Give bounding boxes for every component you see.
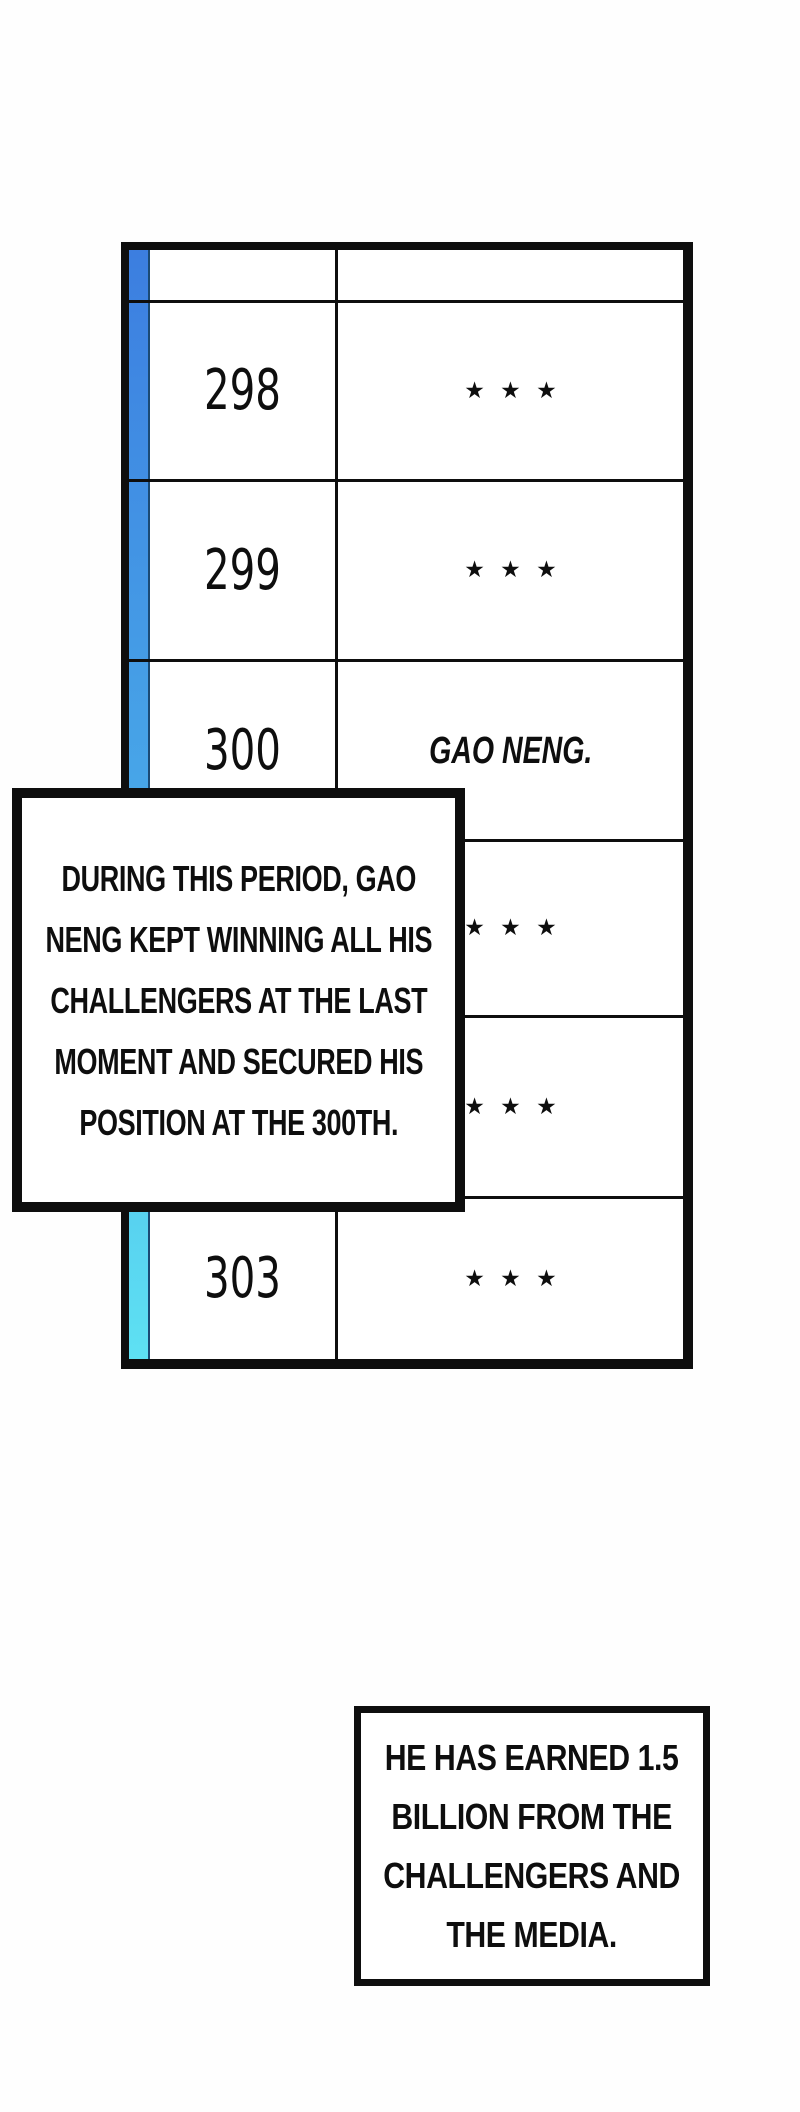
rank-value: 300: [204, 723, 281, 779]
narration-line: HE HAS EARNED 1.5: [384, 1728, 681, 1787]
name-cell: ★ ★ ★: [338, 1199, 683, 1359]
narration-line: CHALLENGERS AND: [384, 1846, 681, 1905]
table-header-row: [129, 250, 683, 303]
table-row: 303 ★ ★ ★: [129, 1199, 683, 1359]
narration-line: POSITION AT THE 300TH.: [45, 1092, 432, 1153]
table-row: 298 ★ ★ ★: [129, 303, 683, 482]
rank-cell: 298: [150, 303, 338, 479]
hidden-name-stars: ★ ★ ★: [460, 917, 560, 940]
rank-value: 299: [204, 543, 281, 599]
rank-value: 303: [204, 1251, 281, 1307]
name-value: GAO NENG.: [429, 732, 592, 770]
hidden-name-stars: ★ ★ ★: [460, 380, 560, 403]
hidden-name-stars: ★ ★ ★: [460, 1096, 560, 1119]
rank-value: 298: [204, 363, 281, 419]
narration-line: BILLION FROM THE: [384, 1787, 681, 1846]
header-rank-cell: [150, 250, 338, 300]
strip-spacer: [129, 1199, 150, 1359]
name-cell: ★ ★ ★: [338, 303, 683, 479]
narration-box-earnings: HE HAS EARNED 1.5 BILLION FROM THE CHALL…: [354, 1706, 710, 1986]
narration-box-period: DURING THIS PERIOD, GAO NENG KEPT WINNIN…: [12, 788, 465, 1212]
narration-line: CHALLENGERS AT THE LAST: [45, 970, 432, 1031]
narration-text: DURING THIS PERIOD, GAO NENG KEPT WINNIN…: [45, 848, 432, 1153]
strip-spacer: [129, 250, 150, 300]
hidden-name-stars: ★ ★ ★: [460, 559, 560, 582]
name-cell: ★ ★ ★: [338, 482, 683, 659]
narration-line: THE MEDIA.: [384, 1905, 681, 1964]
hidden-name-stars: ★ ★ ★: [460, 1268, 560, 1291]
narration-line: MOMENT AND SECURED HIS: [45, 1031, 432, 1092]
strip-spacer: [129, 482, 150, 659]
strip-spacer: [129, 303, 150, 479]
narration-text: HE HAS EARNED 1.5 BILLION FROM THE CHALL…: [384, 1728, 681, 1964]
header-name-cell: [338, 250, 683, 300]
table-row: 299 ★ ★ ★: [129, 482, 683, 662]
rank-cell: 299: [150, 482, 338, 659]
narration-line: NENG KEPT WINNING ALL HIS: [45, 909, 432, 970]
narration-line: DURING THIS PERIOD, GAO: [45, 848, 432, 909]
rank-cell: 303: [150, 1199, 338, 1359]
